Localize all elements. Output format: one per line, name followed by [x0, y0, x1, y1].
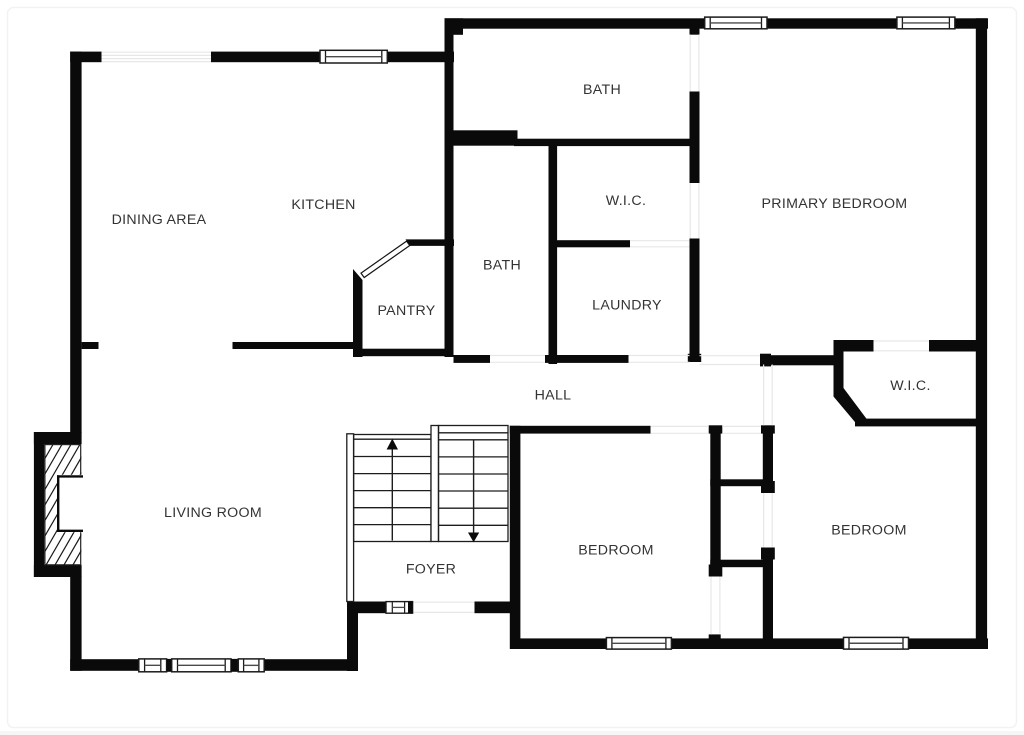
svg-text:PANTRY: PANTRY — [377, 303, 435, 319]
svg-text:BATH: BATH — [583, 82, 621, 98]
svg-text:KITCHEN: KITCHEN — [291, 197, 355, 213]
svg-text:HALL: HALL — [535, 387, 572, 403]
svg-text:LIVING ROOM: LIVING ROOM — [164, 505, 262, 521]
svg-text:DINING AREA: DINING AREA — [112, 212, 207, 228]
svg-text:FOYER: FOYER — [406, 561, 456, 577]
svg-text:W.I.C.: W.I.C. — [606, 193, 646, 209]
svg-text:BEDROOM: BEDROOM — [578, 543, 653, 559]
svg-text:W.I.C.: W.I.C. — [890, 378, 930, 394]
svg-text:BEDROOM: BEDROOM — [831, 522, 906, 538]
svg-text:LAUNDRY: LAUNDRY — [592, 298, 662, 314]
svg-text:PRIMARY BEDROOM: PRIMARY BEDROOM — [762, 196, 908, 212]
svg-text:BATH: BATH — [483, 258, 521, 274]
